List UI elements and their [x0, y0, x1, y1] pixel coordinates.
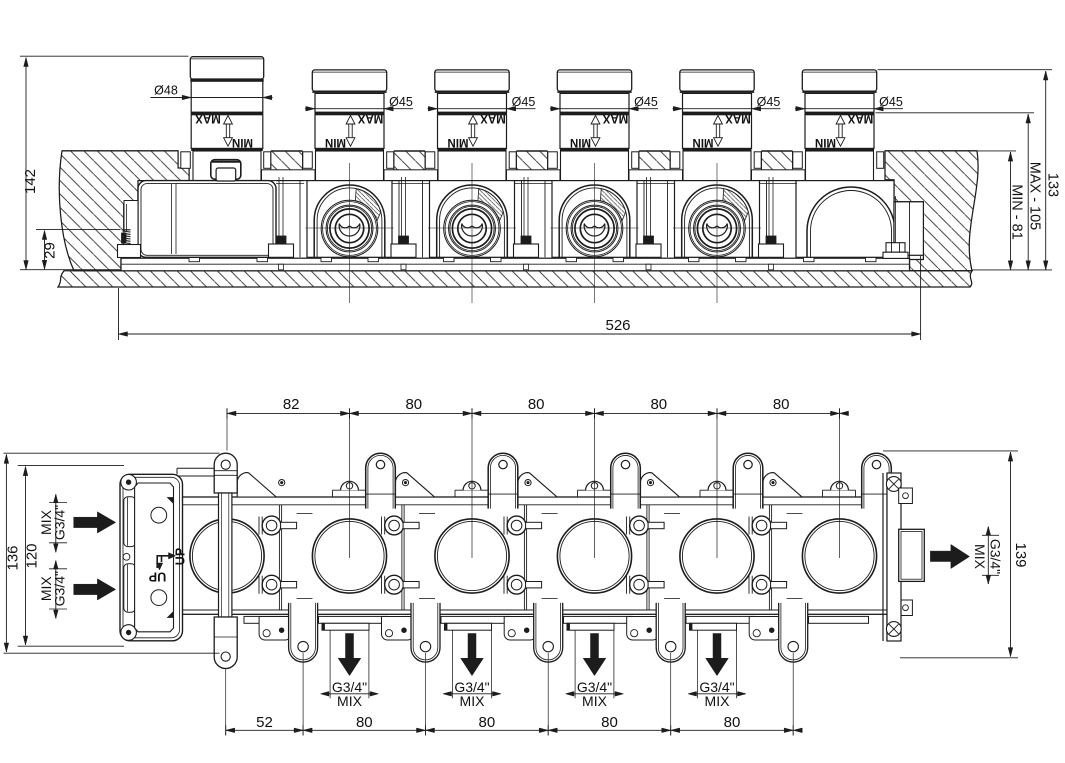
svg-text:MIX: MIX [337, 693, 363, 709]
svg-text:82: 82 [283, 396, 300, 413]
svg-text:133: 133 [1045, 173, 1061, 197]
svg-text:Ø45: Ø45 [879, 95, 903, 109]
svg-text:MAX: MAX [602, 112, 628, 124]
svg-text:80: 80 [479, 714, 496, 731]
svg-text:Ø45: Ø45 [634, 95, 658, 109]
svg-text:52: 52 [256, 714, 273, 731]
svg-text:Ø45: Ø45 [389, 95, 413, 109]
svg-text:MAX: MAX [480, 112, 506, 124]
svg-text:MIX: MIX [972, 544, 988, 570]
svg-text:MAX: MAX [195, 112, 221, 124]
svg-text:29: 29 [42, 242, 59, 259]
svg-text:Ø45: Ø45 [757, 95, 781, 109]
svg-text:MIX: MIX [705, 693, 731, 709]
svg-text:MIX: MIX [460, 693, 486, 709]
svg-text:MIN: MIN [692, 136, 713, 148]
svg-text:UP: UP [174, 548, 188, 565]
svg-text:MIX: MIX [38, 509, 54, 535]
svg-text:MIN: MIN [815, 136, 836, 148]
svg-text:80: 80 [650, 396, 667, 413]
svg-text:MIN: MIN [232, 136, 253, 148]
svg-text:142: 142 [22, 169, 39, 194]
svg-text:MIN: MIN [325, 136, 346, 148]
svg-text:MAX - 105: MAX - 105 [1027, 162, 1043, 231]
svg-text:Ø48: Ø48 [154, 84, 178, 98]
svg-text:UP: UP [149, 570, 166, 584]
svg-text:80: 80 [773, 396, 790, 413]
svg-text:MAX: MAX [847, 112, 873, 124]
svg-text:MAX: MAX [725, 112, 751, 124]
svg-text:MAX: MAX [357, 112, 383, 124]
svg-text:MIN: MIN [447, 136, 468, 148]
svg-text:Ø45: Ø45 [512, 95, 536, 109]
svg-text:MIX: MIX [582, 693, 608, 709]
svg-text:80: 80 [724, 714, 741, 731]
svg-text:G3/4": G3/4" [988, 539, 1004, 574]
svg-text:120: 120 [24, 543, 41, 568]
svg-text:139: 139 [1012, 542, 1029, 567]
svg-text:80: 80 [528, 396, 545, 413]
svg-text:MIN - 81: MIN - 81 [1009, 184, 1025, 240]
svg-text:80: 80 [356, 714, 373, 731]
svg-text:526: 526 [605, 317, 630, 334]
svg-text:MIX: MIX [38, 576, 54, 602]
svg-text:136: 136 [5, 545, 22, 570]
svg-text:MIN: MIN [570, 136, 591, 148]
svg-text:80: 80 [601, 714, 618, 731]
svg-text:80: 80 [405, 396, 422, 413]
